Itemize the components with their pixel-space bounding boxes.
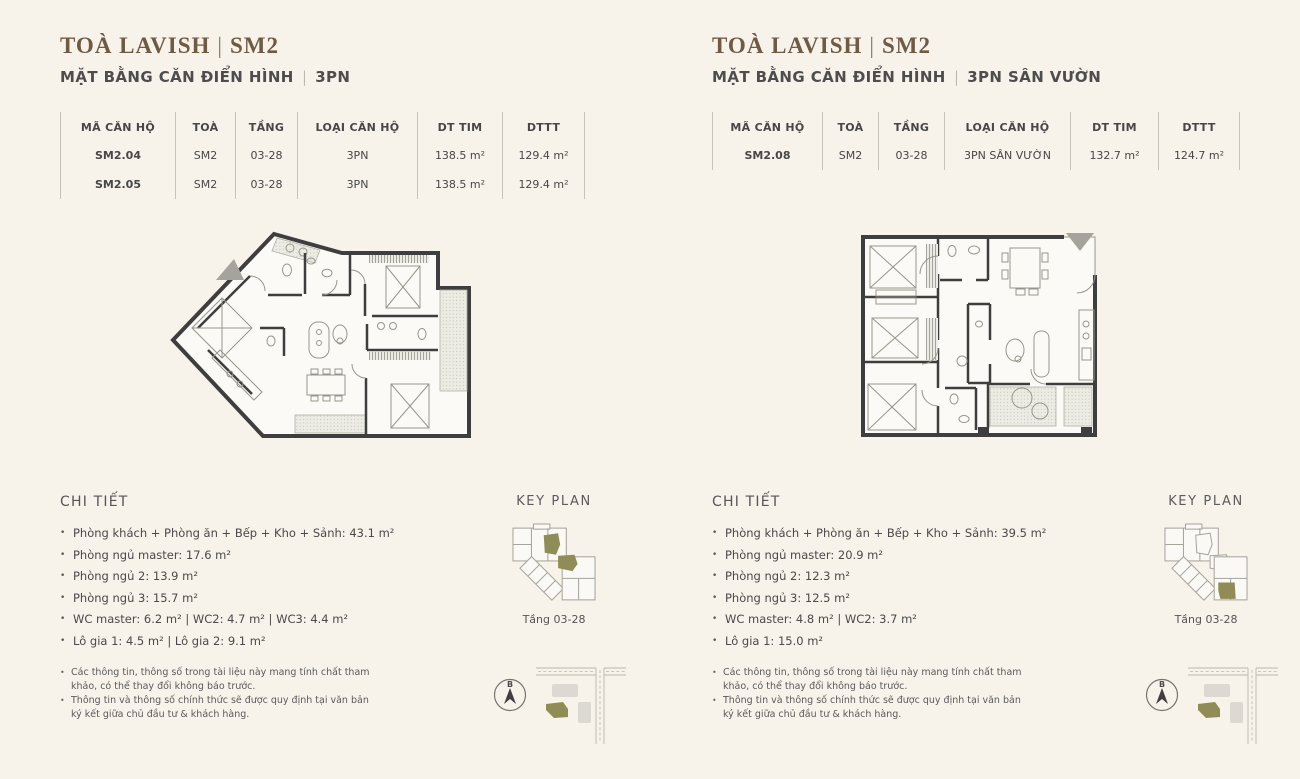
col-header-tower: TOÀ	[175, 112, 235, 142]
keyplan-block: KEY PLAN Tầng 03-28	[1138, 494, 1274, 626]
cell-net-area: 129.4 m²	[502, 170, 585, 199]
keyplan-floor-label: Tầng 03-28	[486, 613, 622, 626]
col-header-net-area: DTTT	[502, 112, 585, 142]
cell-unit-code: SM2.04	[60, 141, 175, 170]
keyplan-diagram	[506, 523, 602, 605]
plan-subtitle: MẶT BẰNG CĂN ĐIỂN HÌNH|3PN	[60, 68, 350, 86]
keyplan-block: KEY PLAN Tầng 03-28	[486, 494, 622, 626]
cell-tower: SM2	[175, 170, 235, 199]
col-header-net-area: DTTT	[1158, 112, 1240, 142]
tower-name: TOÀ LAVISH	[60, 33, 210, 58]
details-list: Phòng khách + Phòng ăn + Bếp + Kho + Sản…	[60, 523, 480, 652]
floor-plan-drawing	[170, 228, 500, 458]
cell-floor: 03-28	[878, 141, 944, 170]
col-header-unit-type: LOẠI CĂN HỘ	[944, 112, 1070, 142]
floor-plan-drawing	[850, 228, 1124, 458]
cell-net-area: 124.7 m²	[1158, 141, 1240, 170]
subtitle-text: MẶT BẰNG CĂN ĐIỂN HÌNH	[60, 68, 294, 86]
title-separator: |	[217, 33, 223, 58]
cell-floor: 03-28	[235, 141, 297, 170]
col-header-unit-type: LOẠI CĂN HỘ	[297, 112, 417, 142]
subtitle-type: 3PN	[315, 68, 350, 86]
unit-spec-table: MÃ CĂN HỘ TOÀ TẦNG LOẠI CĂN HỘ DT TIM DT…	[712, 112, 1240, 170]
brochure-page: { "colors": { "background": "#f7f2ea", "…	[0, 0, 1300, 779]
subtitle-type: 3PN SÂN VƯỜN	[967, 68, 1101, 86]
panel-header: TOÀ LAVISH|SM2 MẶT BẰNG CĂN ĐIỂN HÌNH|3P…	[60, 33, 350, 86]
cell-net-area: 129.4 m²	[502, 141, 585, 170]
unit-panel-right: TOÀ LAVISH|SM2 MẶT BẰNG CĂN ĐIỂN HÌNH|3P…	[652, 0, 1300, 779]
tower-title: TOÀ LAVISH|SM2	[60, 33, 350, 59]
keyplan-heading: KEY PLAN	[486, 494, 622, 509]
note-item: Các thông tin, thông số trong tài liệu n…	[712, 666, 1034, 693]
col-header-tower: TOÀ	[822, 112, 878, 142]
detail-item: Phòng ngủ 2: 12.3 m²	[712, 566, 1132, 588]
site-map	[1186, 658, 1278, 746]
detail-item: Phòng ngủ master: 20.9 m²	[712, 545, 1132, 567]
detail-item: Phòng ngủ master: 17.6 m²	[60, 545, 480, 567]
detail-item: Lô gia 1: 15.0 m²	[712, 631, 1132, 653]
detail-item: Phòng ngủ 3: 12.5 m²	[712, 588, 1132, 610]
compass-north-icon: B	[1140, 670, 1184, 718]
cell-gross-area: 132.7 m²	[1070, 141, 1158, 170]
unit-spec-table: MÃ CĂN HỘ TOÀ TẦNG LOẠI CĂN HỘ DT TIM DT…	[60, 112, 585, 199]
details-heading: CHI TIẾT	[712, 494, 1132, 510]
col-header-gross-area: DT TIM	[1070, 112, 1158, 142]
disclaimer-notes: Các thông tin, thông số trong tài liệu n…	[712, 666, 1034, 722]
tower-title: TOÀ LAVISH|SM2	[712, 33, 1101, 59]
detail-item: WC master: 4.8 m² | WC2: 3.7 m²	[712, 609, 1132, 631]
plan-subtitle: MẶT BẰNG CĂN ĐIỂN HÌNH|3PN SÂN VƯỜN	[712, 68, 1101, 86]
note-item: Các thông tin, thông số trong tài liệu n…	[60, 666, 382, 693]
details-list: Phòng khách + Phòng ăn + Bếp + Kho + Sản…	[712, 523, 1132, 652]
col-header-unit-code: MÃ CĂN HỘ	[60, 112, 175, 142]
cell-tower: SM2	[175, 141, 235, 170]
location-block: B	[488, 658, 628, 746]
cell-unit-type: 3PN SÂN VƯỜN	[944, 141, 1070, 170]
unit-panel-left: TOÀ LAVISH|SM2 MẶT BẰNG CĂN ĐIỂN HÌNH|3P…	[0, 0, 650, 779]
keyplan-floor-label: Tầng 03-28	[1138, 613, 1274, 626]
subtitle-text: MẶT BẰNG CĂN ĐIỂN HÌNH	[712, 68, 946, 86]
cell-unit-type: 3PN	[297, 141, 417, 170]
title-separator: |	[869, 33, 875, 58]
compass-label: B	[1159, 680, 1165, 689]
detail-item: Phòng khách + Phòng ăn + Bếp + Kho + Sản…	[60, 523, 480, 545]
panel-header: TOÀ LAVISH|SM2 MẶT BẰNG CĂN ĐIỂN HÌNH|3P…	[712, 33, 1101, 86]
detail-item: Phòng ngủ 3: 15.7 m²	[60, 588, 480, 610]
keyplan-heading: KEY PLAN	[1138, 494, 1274, 509]
compass-north-icon: B	[488, 670, 532, 718]
details-block: CHI TIẾT Phòng khách + Phòng ăn + Bếp + …	[60, 494, 480, 652]
detail-item: Lô gia 1: 4.5 m² | Lô gia 2: 9.1 m²	[60, 631, 480, 653]
cell-unit-code: SM2.08	[712, 141, 822, 170]
cell-floor: 03-28	[235, 170, 297, 199]
tower-code: SM2	[230, 33, 279, 58]
location-block: B	[1140, 658, 1280, 746]
detail-item: Phòng khách + Phòng ăn + Bếp + Kho + Sản…	[712, 523, 1132, 545]
cell-unit-type: 3PN	[297, 170, 417, 199]
cell-tower: SM2	[822, 141, 878, 170]
tower-code: SM2	[882, 33, 931, 58]
subtitle-separator: |	[954, 68, 959, 86]
compass-label: B	[507, 680, 513, 689]
details-heading: CHI TIẾT	[60, 494, 480, 510]
col-header-gross-area: DT TIM	[417, 112, 502, 142]
keyplan-diagram	[1158, 523, 1254, 605]
col-header-unit-code: MÃ CĂN HỘ	[712, 112, 822, 142]
cell-gross-area: 138.5 m²	[417, 141, 502, 170]
col-header-floor: TẦNG	[235, 112, 297, 142]
tower-name: TOÀ LAVISH	[712, 33, 862, 58]
col-header-floor: TẦNG	[878, 112, 944, 142]
note-item: Thông tin và thông số chính thức sẽ được…	[60, 694, 382, 721]
detail-item: Phòng ngủ 2: 13.9 m²	[60, 566, 480, 588]
cell-unit-code: SM2.05	[60, 170, 175, 199]
subtitle-separator: |	[302, 68, 307, 86]
cell-gross-area: 138.5 m²	[417, 170, 502, 199]
disclaimer-notes: Các thông tin, thông số trong tài liệu n…	[60, 666, 382, 722]
site-map	[534, 658, 626, 746]
details-block: CHI TIẾT Phòng khách + Phòng ăn + Bếp + …	[712, 494, 1132, 652]
detail-item: WC master: 6.2 m² | WC2: 4.7 m² | WC3: 4…	[60, 609, 480, 631]
note-item: Thông tin và thông số chính thức sẽ được…	[712, 694, 1034, 721]
